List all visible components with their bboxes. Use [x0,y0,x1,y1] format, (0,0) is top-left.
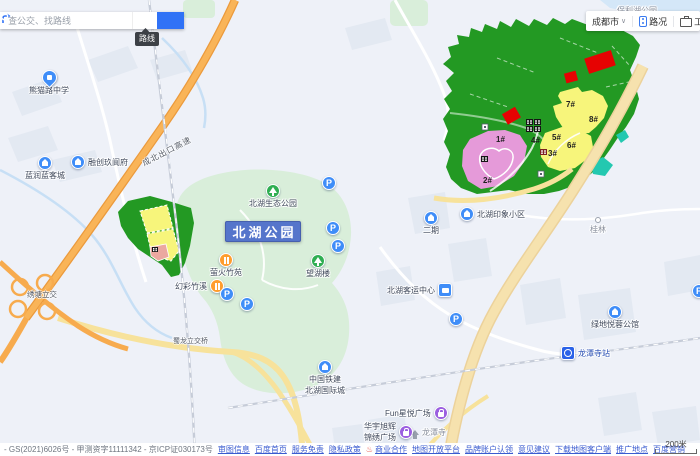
community-icon [318,360,332,374]
parking-icon: P [326,221,340,235]
parking-poi-4[interactable]: P [220,287,234,301]
bus-station-icon [438,283,452,297]
community-icon [38,156,52,170]
copyright-text: - GS(2021)6026号 - 甲测资字11111342 - 京ICP证03… [4,444,213,455]
footer-link-open-platform[interactable]: 地图开放平台 [412,444,460,455]
search-bar [0,12,184,29]
poi-crcc[interactable]: 中国铁建 北湖国际城 [305,360,345,396]
city-selector[interactable]: 成都市 ∨ [586,15,632,28]
parking-icon: P [322,176,336,190]
parking-icon: P [692,284,700,298]
search-input[interactable] [0,12,132,29]
footer-link-brand-claim[interactable]: 品牌账户认领 [465,444,513,455]
park-tree-icon [266,184,280,198]
plot-label-2: 2# [483,177,492,185]
footer-link-download-client[interactable]: 下载地图客户端 [555,444,611,455]
caret-down-icon: ∨ [621,17,626,25]
hot-icon: ♨ [366,445,373,454]
parking-poi-7[interactable]: P [692,284,700,298]
poi-wanghulou[interactable]: 望湖楼 [306,254,330,279]
poi-panda-school[interactable]: 熊猫路中学 [29,70,69,96]
poi-fun-plaza[interactable]: Fun星悦广场 [385,406,448,420]
parking-icon: P [220,287,234,301]
traffic-toggle[interactable]: 路况 [633,15,673,28]
parking-icon: P [331,239,345,253]
footer-link-disclaimer[interactable]: 服务免责 [292,444,324,455]
white-marker-2 [538,171,544,177]
footer-link-map-review[interactable]: 审图信息 [218,444,250,455]
scale-line [655,449,697,454]
footer-bar: - GS(2021)6026号 - 甲测资字11111342 - 京ICP证03… [0,443,700,456]
grid-icon-yellow [540,149,547,155]
footer-link-promote[interactable]: 推广地点 [616,444,648,455]
plot-label-7: 7# [566,101,575,109]
plot-label-4: 4# [531,137,540,145]
briefcase-icon [680,18,692,27]
shopping-icon [434,406,448,420]
footer-link-feedback[interactable]: 意见建议 [518,444,550,455]
grid-icon-pink [481,156,488,162]
poi-huayu[interactable]: 华宇旭辉锦绣广场 [364,421,413,443]
poi-rongchuang[interactable]: 融创玖阆府 [71,155,128,169]
plot-label-6: 6# [567,142,576,150]
poi-guilin[interactable]: 桂林 [590,217,606,235]
place-dot-icon [595,217,601,223]
poi-yinghuo[interactable]: 萤火竹苑 [210,253,242,278]
community-icon [424,211,438,225]
scale-text: 200米 [665,440,686,449]
route-tooltip: 路线 [135,32,159,46]
route-button[interactable] [132,12,157,29]
top-toolbar: 成都市 ∨ 路况 工具箱 [586,11,700,31]
grid-icon-left-zone [152,247,158,252]
north-lake-park-label[interactable]: 北湖公园 [225,221,301,242]
plot-label-5: 5# [552,134,561,142]
parking-poi-2[interactable]: P [326,221,340,235]
scenic-icon [311,254,325,268]
poi-lanrun[interactable]: 蓝润蓝客城 [25,156,65,181]
poi-erqi[interactable]: 二期 [423,211,439,236]
shopping-icon [399,425,413,439]
poi-bus-center[interactable]: 北湖客运中心 [387,283,452,297]
community-icon [608,305,622,319]
search-icon [0,12,11,23]
poi-metro-station[interactable]: 龙潭寺站 [561,346,610,360]
community-icon [71,155,85,169]
poi-lvdi[interactable]: 绿地悦蓉公馆 [591,305,639,330]
parking-poi-1[interactable]: P [322,176,336,190]
poi-eco-park[interactable]: 北湖生态公园 [249,184,297,209]
interchange-label: 绣塘立交 [27,289,57,300]
white-marker-1 [482,124,488,130]
plot-label-8: 8# [589,116,598,124]
community-icon [460,207,474,221]
traffic-light-icon [639,16,647,27]
footer-link-privacy[interactable]: 隐私政策 [329,444,361,455]
plot-label-3: 3# [548,150,557,158]
scale-bar: 200米 [655,440,697,454]
search-button[interactable] [157,12,184,29]
poi-huancai[interactable]: 幻彩竹溪 [175,279,224,293]
shulong-bridge-label: 蜀龙立交桥 [173,336,208,346]
toolbox-button[interactable]: 工具箱 [674,15,700,28]
parking-poi-5[interactable]: P [240,297,254,311]
restaurant-icon [219,253,233,267]
map-app: 1# 2# 3# 4# 5# 6# 7# 8# 北湖公园 熊猫路中学 蓝润蓝客城… [0,0,700,456]
poi-impression[interactable]: 北湖印象小区 [460,207,525,221]
poi-longtan-temple[interactable]: 龙潭寺 [411,427,446,438]
parking-poi-3[interactable]: P [331,239,345,253]
parking-icon: P [240,297,254,311]
parking-poi-6[interactable]: P [449,312,463,326]
footer-link-baidu-home[interactable]: 百度首页 [255,444,287,455]
parking-icon: P [449,312,463,326]
plot-label-1: 1# [496,136,505,144]
metro-icon [561,346,575,360]
footer-link-business[interactable]: 商业合作 [375,444,407,455]
